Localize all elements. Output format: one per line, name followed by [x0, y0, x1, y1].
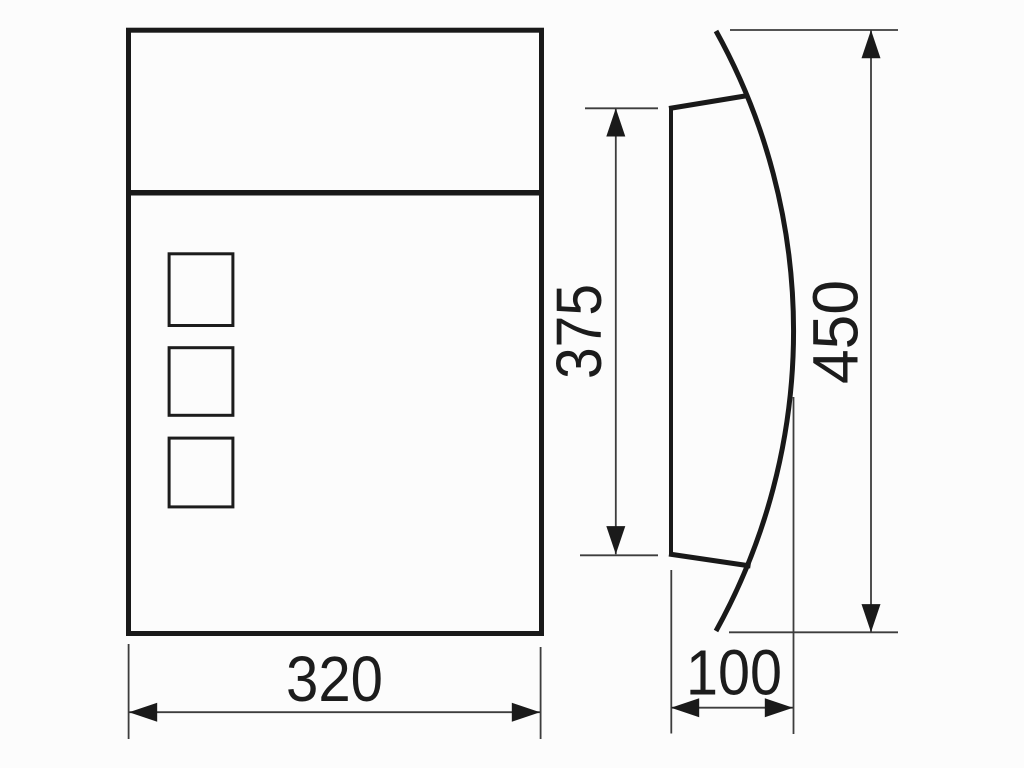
svg-text:320: 320 — [286, 643, 383, 715]
svg-text:450: 450 — [800, 280, 872, 384]
svg-text:100: 100 — [686, 637, 782, 709]
svg-text:375: 375 — [543, 284, 615, 379]
